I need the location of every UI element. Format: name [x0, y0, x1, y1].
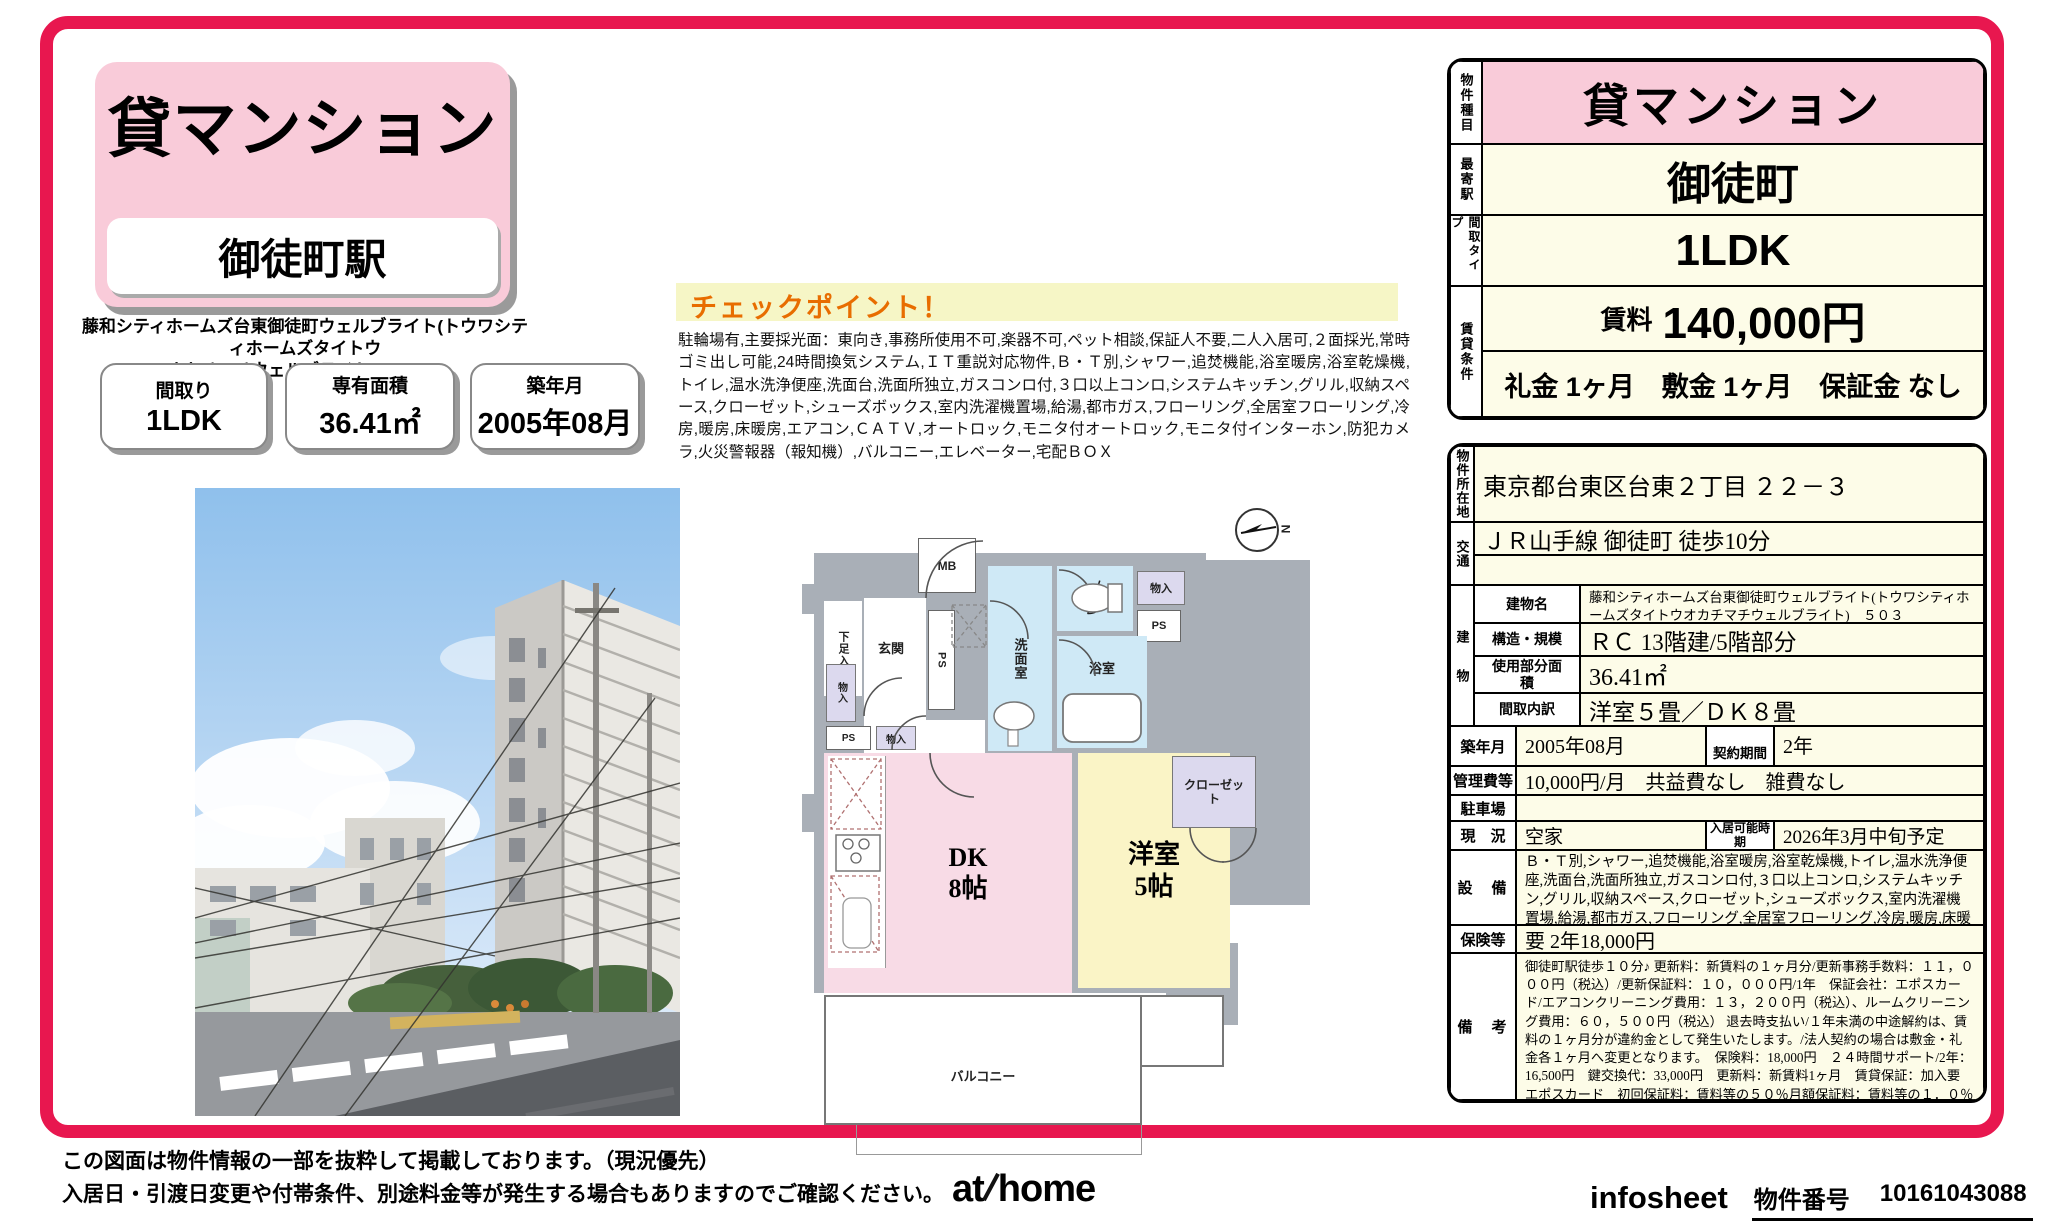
room-label-ps: PS — [936, 652, 948, 669]
detail-status: 空家 — [1516, 821, 1706, 850]
detail-label-access: 交通 — [1450, 522, 1474, 585]
summary-value-layout: 1LDK — [1482, 215, 1984, 286]
plan-wall-tab — [802, 584, 816, 614]
detail-built: 2005年08月 — [1516, 726, 1706, 766]
room-label-balcony: バルコニー — [951, 1066, 1016, 1085]
plan-ps-sw: PS — [826, 726, 871, 750]
footer-notes: この図面は物件情報の一部を抜粋して掲載しております。（現況優先） 入居日・引渡日… — [62, 1146, 944, 1211]
detail-mgmt: 10,000円/月 共益費なし 雑費なし — [1516, 766, 1984, 795]
infosheet-label: infosheet — [1590, 1180, 1728, 1216]
info-box-value: 36.41㎡ — [319, 400, 421, 442]
detail-label-contract: 契約期間 — [1706, 726, 1774, 766]
detail-equipment: Ｂ・Ｔ別,シャワー,追焚機能,浴室暖房,浴室乾燥機,トイレ,温水洗浄便座,洗面台… — [1516, 850, 1984, 925]
summary-value-station: 御徒町 — [1482, 144, 1984, 215]
room-label-storage: 物入 — [834, 682, 849, 704]
info-box-label: 間取り — [155, 376, 212, 403]
detail-label-building-name: 建物名 — [1474, 585, 1580, 623]
room-label-shoe: 下足入 — [835, 631, 851, 667]
detail-label-status: 現 況 — [1450, 821, 1516, 850]
summary-value-type: 貸マンション — [1482, 61, 1984, 144]
detail-insurance: 要 2年18,000円 — [1516, 925, 1984, 953]
info-box-label: 専有面積 — [332, 371, 408, 398]
property-number: 物件番号 10161043088 — [1752, 1180, 2033, 1221]
rent-label: 賃料 — [1600, 300, 1652, 337]
summary-value-rent: 賃料 140,000円 — [1482, 286, 1984, 351]
room-label-toilet: トイレ — [1081, 577, 1109, 619]
station-box: 御徒町駅 — [107, 218, 498, 294]
plan-toilet: トイレ — [1057, 566, 1133, 631]
room-label-mb: MB — [938, 559, 957, 573]
footer-note-1: この図面は物件情報の一部を抜粋して掲載しております。（現況優先） — [62, 1146, 944, 1179]
room-label-western-size: 5帖 — [1128, 871, 1180, 902]
detail-label-parking: 駐車場 — [1450, 795, 1516, 821]
compass-north-label: N — [1278, 525, 1292, 534]
plan-wall-tab — [802, 794, 816, 832]
detail-layout-detail: 洋室５畳／ＤＫ８畳 — [1580, 693, 1984, 726]
property-type-title: 貸マンション — [95, 78, 510, 170]
room-label-dk-size: 8帖 — [948, 873, 987, 904]
detail-label-mgmt: 管理費等 — [1450, 766, 1516, 795]
footer-infosheet: infosheet 物件番号 10161043088 — [1590, 1180, 2033, 1221]
room-label-dk: DK — [948, 842, 987, 873]
plan-pipe-space: PS — [928, 610, 955, 710]
detail-parking — [1516, 795, 1984, 821]
detail-label-address: 物件所在地 — [1450, 446, 1474, 522]
summary-table: 物件種目 貸マンション 最寄駅 御徒町 間取タイプ 1LDK 賃貸条件 賃料 1… — [1447, 58, 1987, 420]
detail-structure: ＲＣ 13階建/5階部分 — [1580, 623, 1984, 656]
detail-label-equipment: 設 備 — [1450, 850, 1516, 925]
detail-access2 — [1474, 555, 1984, 585]
detail-label-built: 築年月 — [1450, 726, 1516, 766]
plan-meter-box: MB — [918, 538, 976, 593]
room-label-storage: 物入 — [886, 731, 906, 746]
room-label-entrance: 玄関 — [878, 638, 904, 657]
compass-icon — [1235, 508, 1279, 552]
detail-label-layout-detail: 間取内訳 — [1474, 693, 1580, 726]
plan-balcony-ext — [1142, 995, 1224, 1067]
plan-storage-ne: 物入 — [1137, 571, 1185, 605]
info-box-label: 築年月 — [526, 371, 583, 398]
plan-storage-w: 物入 — [826, 664, 856, 722]
building-photo-art — [195, 488, 680, 1116]
property-number-label: 物件番号 — [1754, 1180, 1850, 1215]
info-box-area: 専有面積 36.41㎡ — [285, 363, 455, 450]
info-box-layout: 間取り 1LDK — [100, 363, 268, 450]
room-label-western: 洋室 — [1128, 839, 1180, 870]
info-box-value: 2005年08月 — [478, 400, 633, 442]
detail-access: ＪＲ山手線 御徒町 徒歩10分 — [1474, 522, 1984, 555]
detail-movein: 2026年3月中旬予定 — [1774, 821, 1984, 850]
summary-label-layout: 間取タイプ — [1450, 215, 1482, 286]
athome-logo: at home — [952, 1168, 1095, 1211]
summary-label-terms: 賃貸条件 — [1450, 286, 1482, 417]
room-label-ps: PS — [1152, 620, 1167, 632]
checkpoint-body: 駐輪場有,主要採光面：東向き,事務所使用不可,楽器不可,ペット相談,保証人不要,… — [678, 330, 1410, 464]
summary-label-type: 物件種目 — [1450, 61, 1482, 144]
detail-label-insurance: 保険等 — [1450, 925, 1516, 953]
summary-value-fees: 礼金 1ヶ月 敷金 1ヶ月 保証金 なし — [1482, 351, 1984, 417]
detail-address: 東京都台東区台東２丁目 ２２－３ — [1474, 446, 1984, 522]
room-label-storage: 物入 — [1150, 580, 1172, 596]
rent-value: 140,000円 — [1662, 287, 1865, 351]
plan-storage-s: 物入 — [876, 726, 916, 750]
detail-area: 36.41㎡ — [1580, 656, 1984, 693]
detail-table: 物件所在地 東京都台東区台東２丁目 ２２－３ 交通 ＪＲ山手線 御徒町 徒歩10… — [1447, 443, 1987, 1103]
plan-washroom: 洗面室 — [988, 566, 1052, 751]
athome-logo-at: at — [952, 1168, 984, 1211]
room-label-bath: 浴室 — [1089, 658, 1115, 677]
plan-balcony: バルコニー — [824, 995, 1142, 1125]
room-label-closet: クローゼット — [1184, 778, 1244, 807]
checkpoint-title: チェックポイント！ — [690, 286, 951, 325]
plan-closet: クローゼット — [1172, 756, 1256, 828]
detail-label-building: 建物 — [1450, 585, 1474, 726]
athome-logo-home: home — [998, 1168, 1095, 1211]
room-label-ps: PS — [842, 733, 855, 744]
info-box-value: 1LDK — [146, 405, 222, 438]
building-photo — [195, 488, 680, 1116]
detail-notes: 御徒町駅徒歩１０分♪ 更新料：新賃料の１ヶ月分/更新事務手数料：１１，０００円（… — [1516, 953, 1984, 1100]
plan-bathroom: 浴室 — [1057, 636, 1147, 748]
footer-note-2: 入居日・引渡日変更や付帯条件、別途料金等が発生する場合もありますのでご確認くださ… — [62, 1179, 944, 1212]
detail-building-name: 藤和シティホームズ台東御徒町ウェルブライト(トウワシティホームズタイトウオカチマ… — [1580, 585, 1984, 623]
detail-label-structure: 構造・規模 — [1474, 623, 1580, 656]
plan-kitchen-strip — [828, 756, 886, 968]
info-box-built: 築年月 2005年08月 — [470, 363, 640, 450]
summary-label-station: 最寄駅 — [1450, 144, 1482, 215]
station-name: 御徒町駅 — [218, 226, 386, 287]
detail-label-movein: 入居可能時期 — [1706, 821, 1774, 850]
floor-plan: MB 下足入 玄関 廊下 PS 洗面室 トイレ 物入 PS 浴室 物入 PS 物… — [800, 498, 1312, 1166]
detail-label-notes: 備 考 — [1450, 953, 1516, 1100]
property-number-value: 10161043088 — [1880, 1180, 2027, 1215]
room-label-wash: 洗面室 — [1011, 638, 1030, 680]
detail-label-area: 使用部分面積 — [1474, 656, 1580, 693]
detail-contract: 2年 — [1774, 726, 1984, 766]
